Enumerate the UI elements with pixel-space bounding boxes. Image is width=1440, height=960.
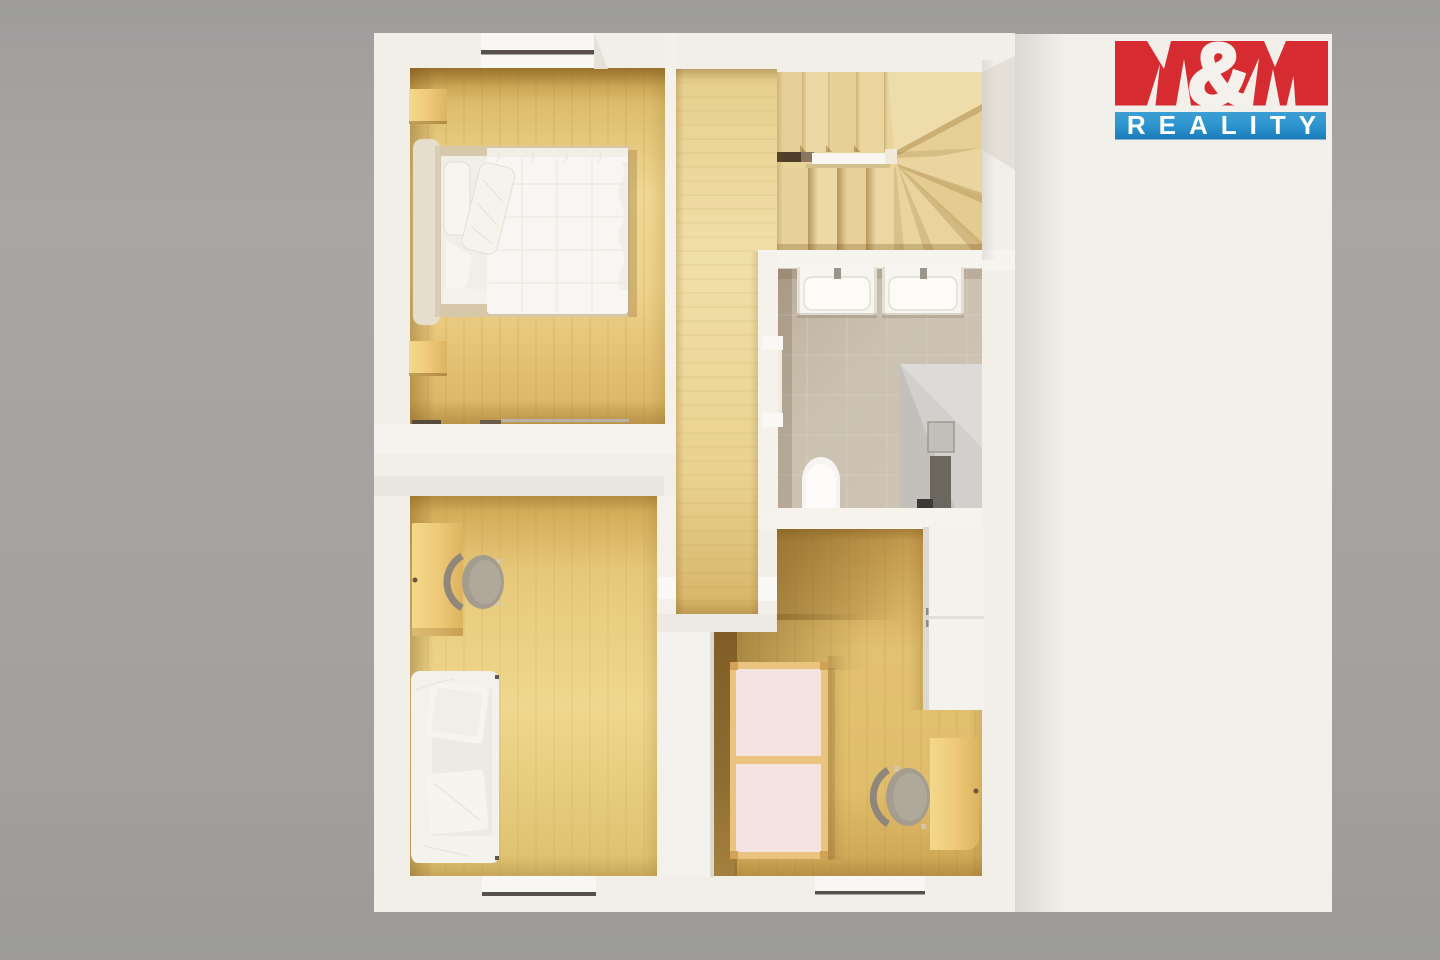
- svg-text:REALITY: REALITY: [1127, 110, 1329, 140]
- svg-text:&: &: [1188, 26, 1251, 123]
